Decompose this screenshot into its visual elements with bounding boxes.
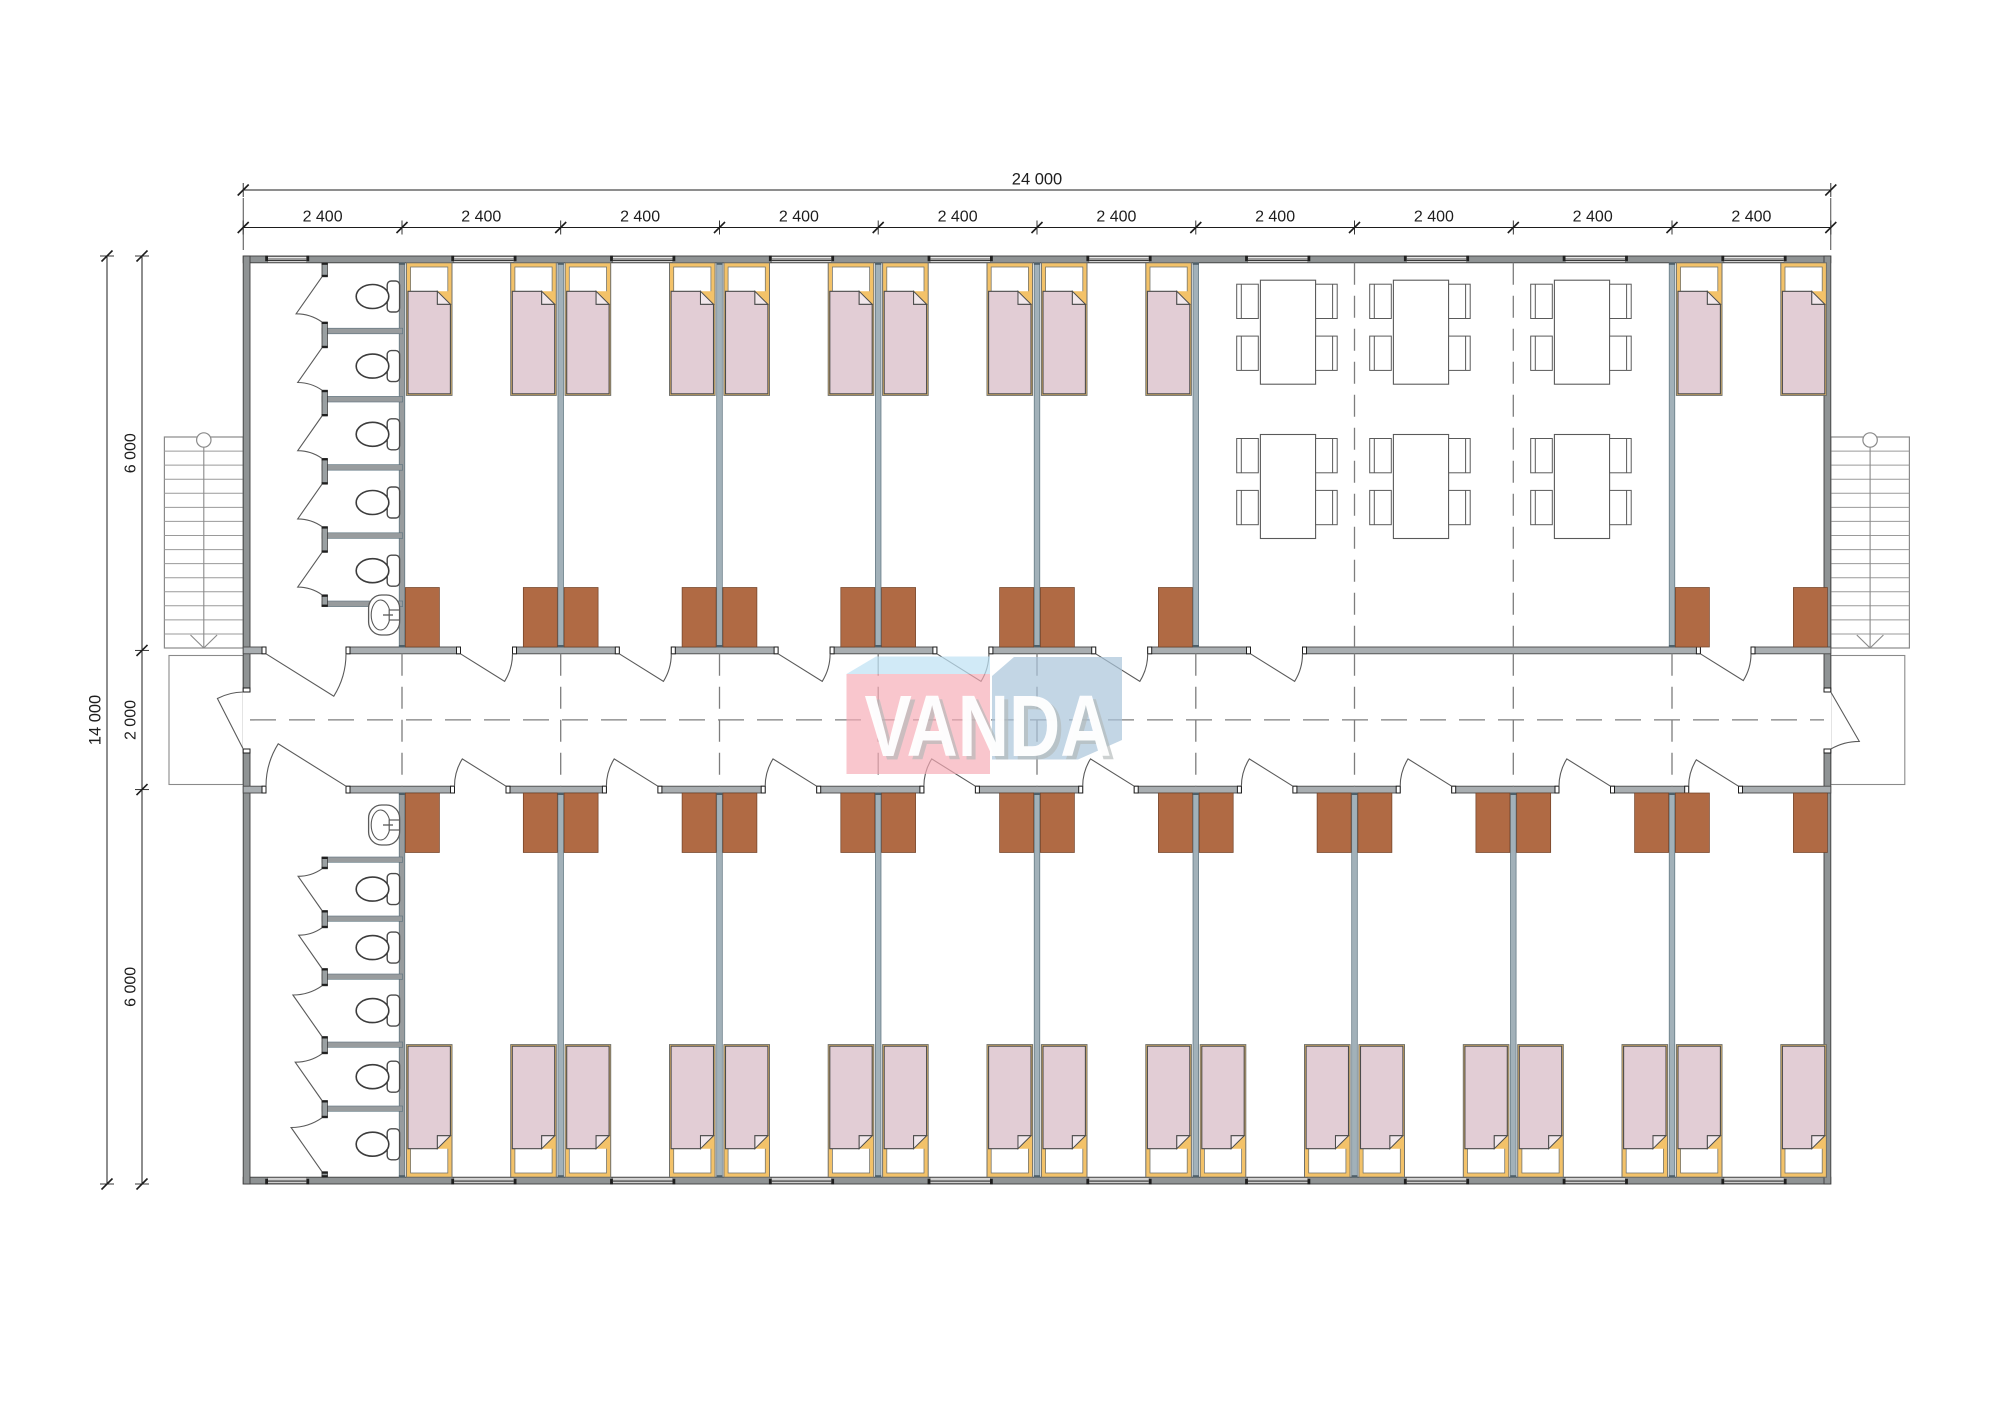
svg-text:2 400: 2 400 — [1096, 209, 1136, 226]
svg-text:2 400: 2 400 — [461, 209, 501, 226]
svg-text:2 400: 2 400 — [1573, 209, 1613, 226]
svg-text:6 000: 6 000 — [123, 433, 140, 473]
svg-text:2 400: 2 400 — [620, 209, 660, 226]
svg-text:2 400: 2 400 — [1414, 209, 1454, 226]
svg-text:6 000: 6 000 — [123, 967, 140, 1007]
svg-text:VANDA: VANDA — [865, 678, 1112, 775]
svg-text:2 400: 2 400 — [779, 209, 819, 226]
svg-text:24 000: 24 000 — [1012, 171, 1062, 189]
svg-text:2 400: 2 400 — [938, 209, 978, 226]
svg-text:14 000: 14 000 — [87, 695, 105, 745]
svg-text:2 000: 2 000 — [123, 700, 140, 740]
svg-text:2 400: 2 400 — [1731, 209, 1771, 226]
svg-text:2 400: 2 400 — [303, 209, 343, 226]
svg-text:2 400: 2 400 — [1255, 209, 1295, 226]
